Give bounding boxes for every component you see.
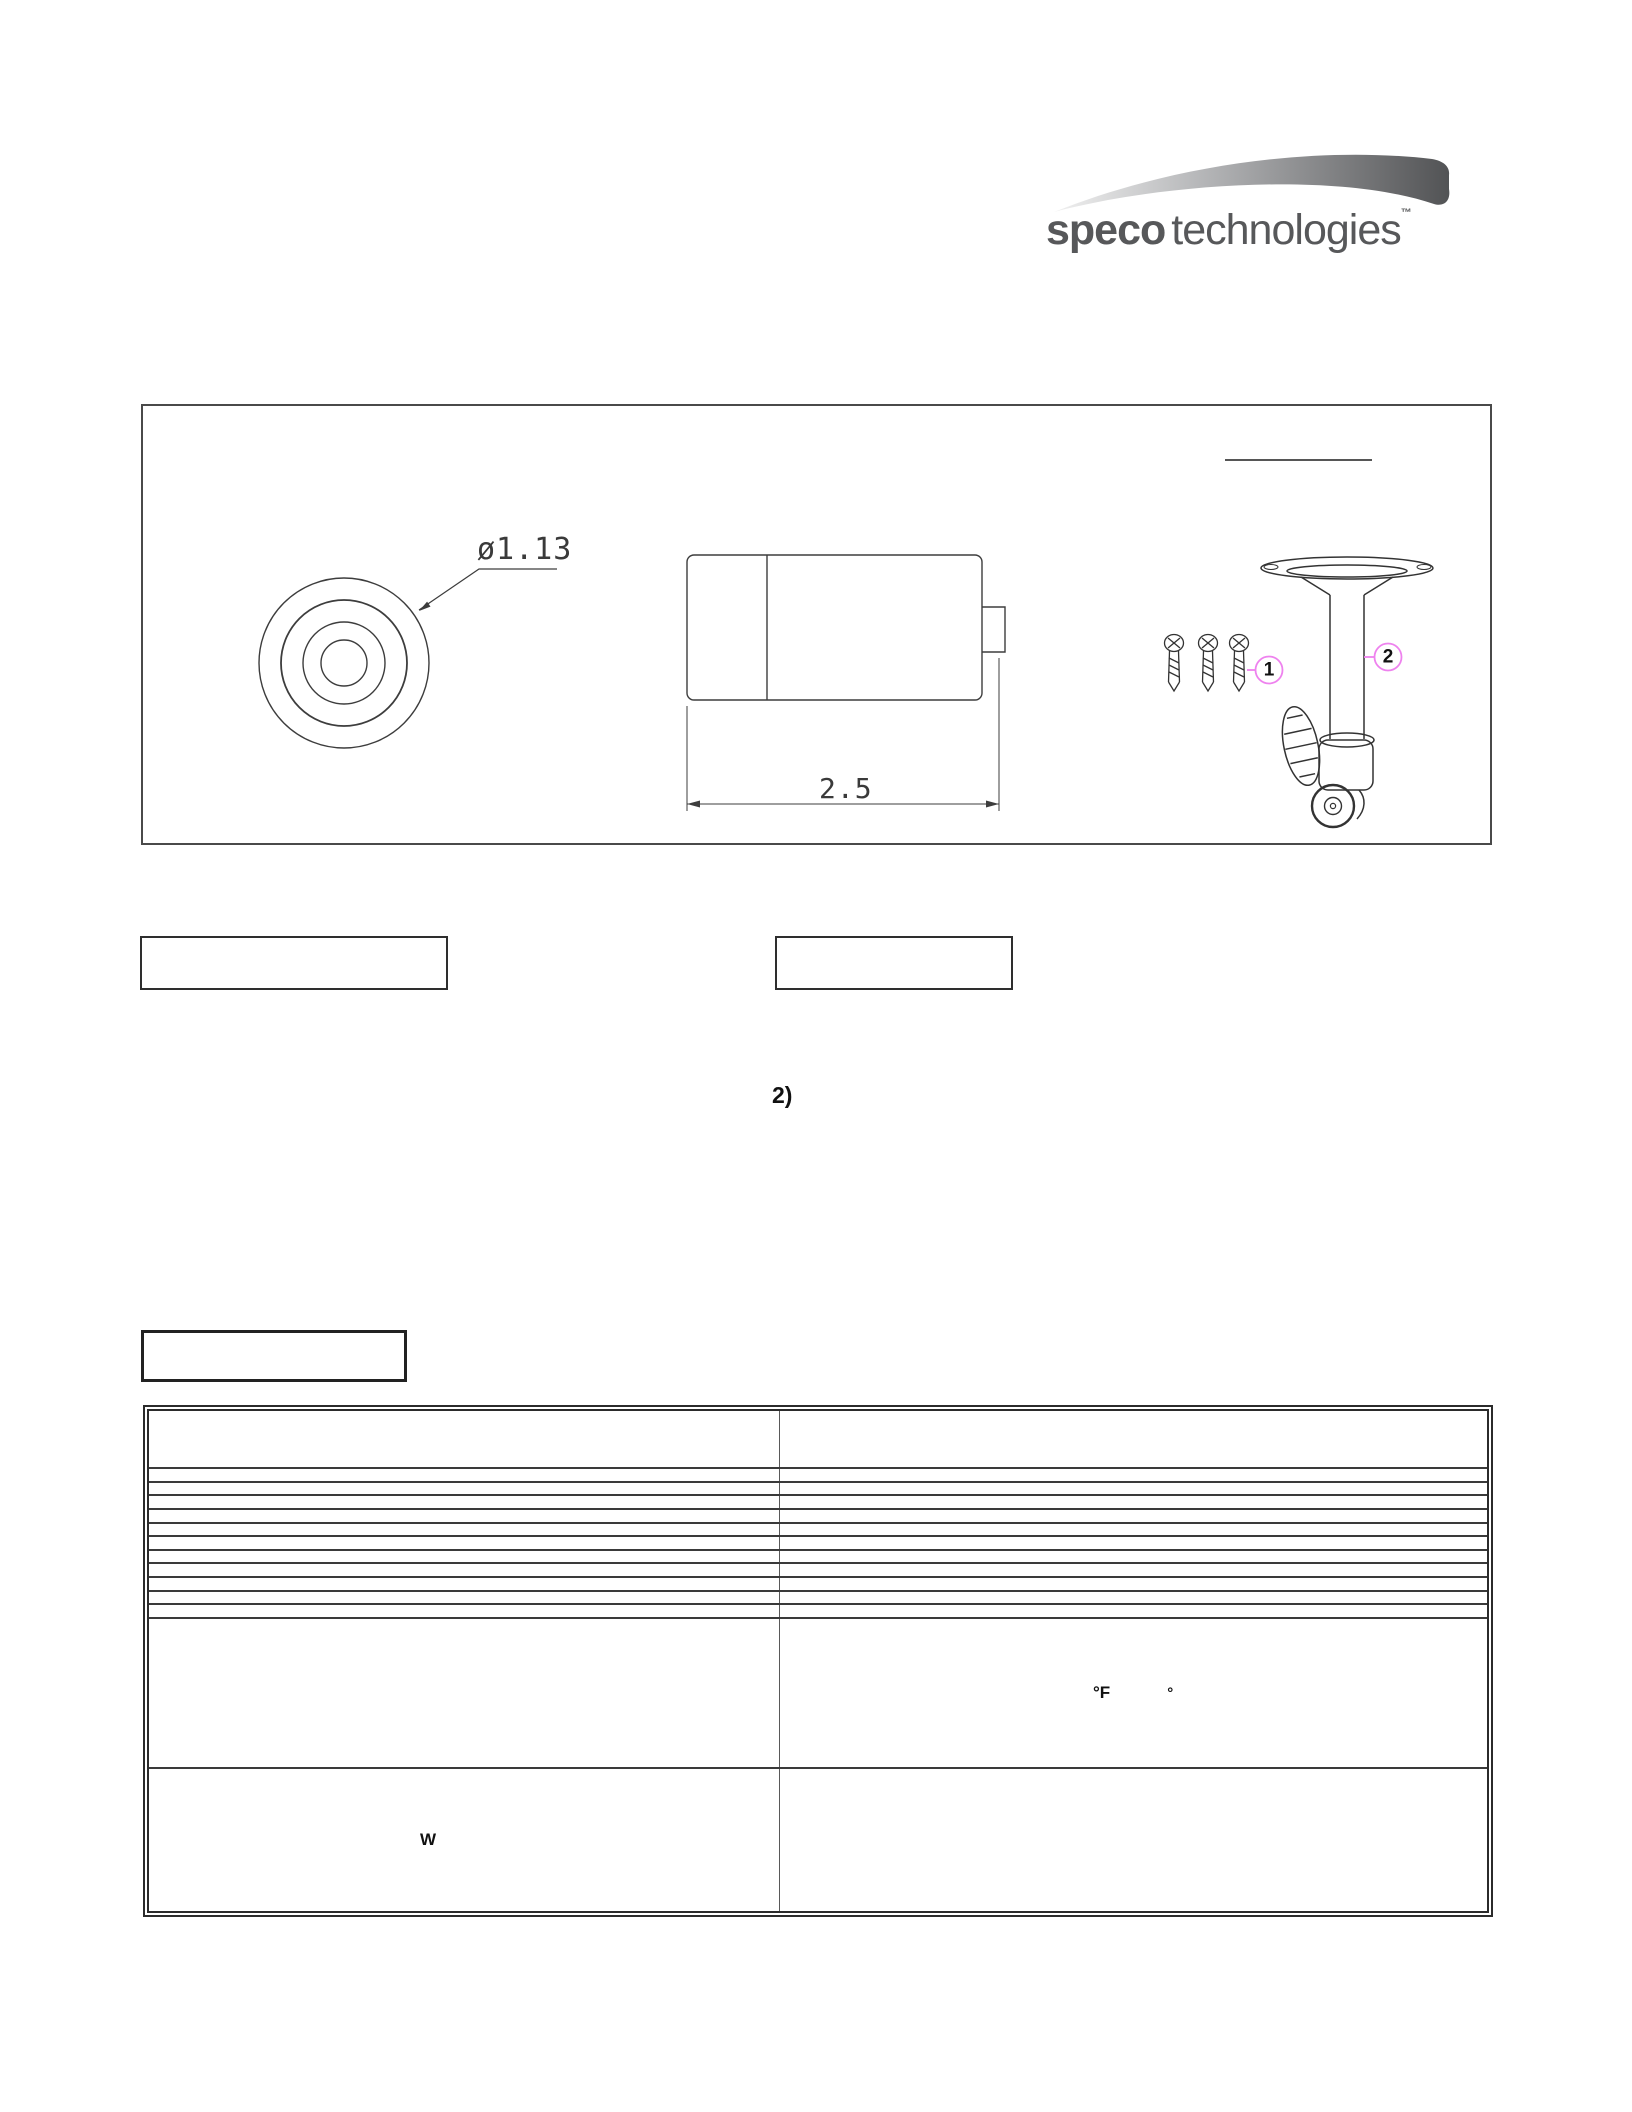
label-box-left	[140, 936, 448, 990]
spec-cell	[780, 1411, 1488, 1468]
trademark-symbol: ™	[1401, 207, 1412, 219]
power-unit-watt: W	[420, 1830, 436, 1849]
spec-cell	[780, 1536, 1488, 1550]
spec-cell	[149, 1563, 780, 1577]
table-row	[149, 1550, 1487, 1564]
spec-cell	[149, 1577, 780, 1591]
spec-cell	[780, 1768, 1488, 1911]
temperature-degree-symbol: °	[1167, 1685, 1173, 1702]
logo-swoosh-icon	[1048, 148, 1454, 214]
table-row	[149, 1536, 1487, 1550]
spec-cell	[149, 1509, 780, 1523]
spec-cell	[149, 1618, 780, 1768]
speco-logo: specotechnologies™	[1046, 148, 1466, 260]
spec-cell	[149, 1550, 780, 1564]
table-row	[149, 1482, 1487, 1496]
spec-cell	[780, 1604, 1488, 1618]
callout-2-number: 2	[1383, 648, 1394, 667]
camera-front-view-drawing	[259, 569, 557, 748]
spec-cell	[149, 1523, 780, 1537]
length-dimension-label: 2.5	[819, 772, 873, 805]
table-row	[149, 1495, 1487, 1509]
spec-cell	[780, 1495, 1488, 1509]
logo-wordmark: specotechnologies™	[1046, 206, 1412, 255]
table-row: °F°	[149, 1618, 1487, 1768]
spec-cell	[780, 1468, 1488, 1482]
spec-cell	[780, 1550, 1488, 1564]
table-row	[149, 1411, 1487, 1468]
table-row: W	[149, 1768, 1487, 1911]
logo-brand-suffix: technologies	[1171, 206, 1400, 254]
table-row	[149, 1577, 1487, 1591]
technical-drawing-panel: ø1.13 2.5 1 2	[141, 404, 1492, 845]
table-row	[149, 1591, 1487, 1605]
spec-cell	[780, 1591, 1488, 1605]
spec-cell	[149, 1411, 780, 1468]
table-row	[149, 1604, 1487, 1618]
callout-1-number: 1	[1264, 661, 1275, 680]
label-box-right	[775, 936, 1013, 990]
mounting-bracket-drawing	[1261, 557, 1433, 827]
spec-cell-temperature: °F°	[780, 1618, 1488, 1768]
specifications-table: °F° W	[143, 1405, 1493, 1917]
spec-cell	[149, 1536, 780, 1550]
table-row	[149, 1509, 1487, 1523]
spec-cell	[149, 1468, 780, 1482]
table-row	[149, 1468, 1487, 1482]
spec-cell-power: W	[149, 1768, 780, 1911]
step-label: 2)	[772, 1082, 792, 1109]
table-row	[149, 1523, 1487, 1537]
mounting-screws-drawing	[1165, 635, 1249, 692]
temperature-unit-f: °F	[1093, 1683, 1110, 1702]
diameter-dimension-label: ø1.13	[477, 532, 572, 567]
spec-cell	[780, 1482, 1488, 1496]
spec-cell	[149, 1495, 780, 1509]
spec-cell	[780, 1563, 1488, 1577]
document-page: specotechnologies™	[0, 0, 1632, 2112]
spec-cell	[149, 1604, 780, 1618]
spec-cell	[780, 1577, 1488, 1591]
table-row	[149, 1563, 1487, 1577]
spec-cell	[149, 1482, 780, 1496]
section-title-box	[141, 1330, 407, 1382]
logo-brand: speco	[1046, 206, 1165, 254]
spec-cell	[149, 1591, 780, 1605]
spec-cell	[780, 1509, 1488, 1523]
spec-cell	[780, 1523, 1488, 1537]
